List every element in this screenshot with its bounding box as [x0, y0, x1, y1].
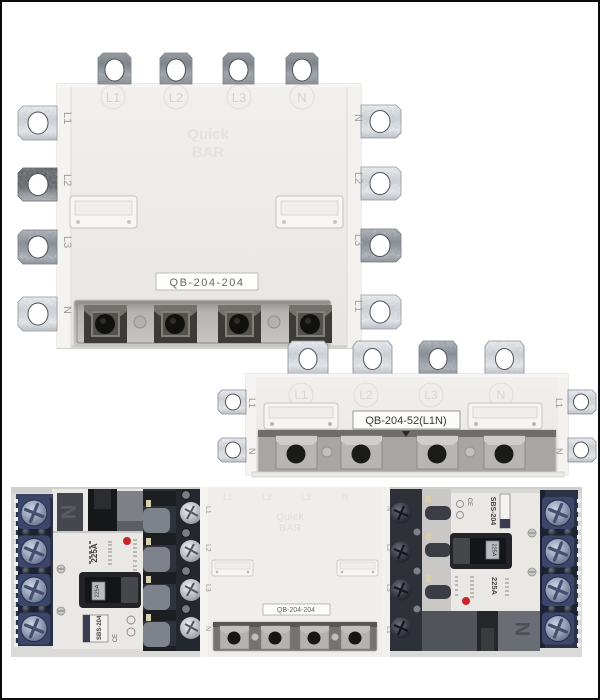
svg-text:N: N: [297, 90, 306, 105]
svg-text:L2: L2: [262, 492, 272, 502]
svg-text:SBS-204: SBS-204: [489, 497, 496, 526]
svg-text:L2: L2: [359, 388, 373, 402]
svg-text:N: N: [247, 448, 257, 455]
svg-text:Quick: Quick: [276, 512, 304, 523]
svg-text:L1: L1: [554, 398, 564, 408]
svg-text:L3: L3: [352, 234, 364, 246]
svg-text:225A: 225A: [491, 544, 497, 557]
svg-text:L1: L1: [352, 300, 364, 312]
svg-text:N: N: [497, 388, 506, 402]
svg-text:QB-204-204: QB-204-204: [170, 277, 245, 289]
svg-text:N: N: [352, 114, 364, 122]
svg-text:L1: L1: [247, 398, 257, 408]
svg-text:L3: L3: [232, 90, 246, 105]
svg-text:L2: L2: [352, 172, 364, 184]
svg-text:QB-204-204: QB-204-204: [277, 607, 315, 614]
svg-text:BAR: BAR: [192, 144, 225, 161]
svg-text:L3: L3: [301, 492, 311, 502]
svg-text:CE: CE: [113, 634, 119, 642]
svg-text:N: N: [511, 622, 533, 636]
svg-text:SBS-204: SBS-204: [97, 615, 103, 640]
svg-text:QB-204-52(L1N): QB-204-52(L1N): [365, 415, 446, 427]
svg-text:225A: 225A: [90, 543, 99, 562]
svg-text:CE: CE: [466, 498, 472, 506]
svg-text:225A: 225A: [490, 577, 499, 596]
svg-text:L1: L1: [61, 112, 73, 124]
svg-text:L1: L1: [106, 90, 120, 105]
svg-text:N: N: [342, 492, 349, 502]
svg-text:L1: L1: [294, 388, 308, 402]
svg-text:N: N: [58, 505, 80, 519]
svg-text:N: N: [204, 626, 211, 631]
svg-text:N: N: [61, 306, 73, 314]
svg-text:L3: L3: [204, 584, 211, 592]
svg-text:Quick: Quick: [187, 126, 229, 143]
svg-text:L2: L2: [169, 90, 183, 105]
svg-text:L1: L1: [223, 492, 233, 502]
svg-text:L3: L3: [424, 388, 438, 402]
svg-text:L1: L1: [204, 506, 211, 514]
svg-text:L3: L3: [61, 236, 73, 248]
svg-text:L2: L2: [204, 544, 211, 552]
svg-text:L2: L2: [61, 174, 73, 186]
svg-text:225A: 225A: [95, 584, 101, 597]
svg-text:BAR: BAR: [279, 523, 301, 534]
